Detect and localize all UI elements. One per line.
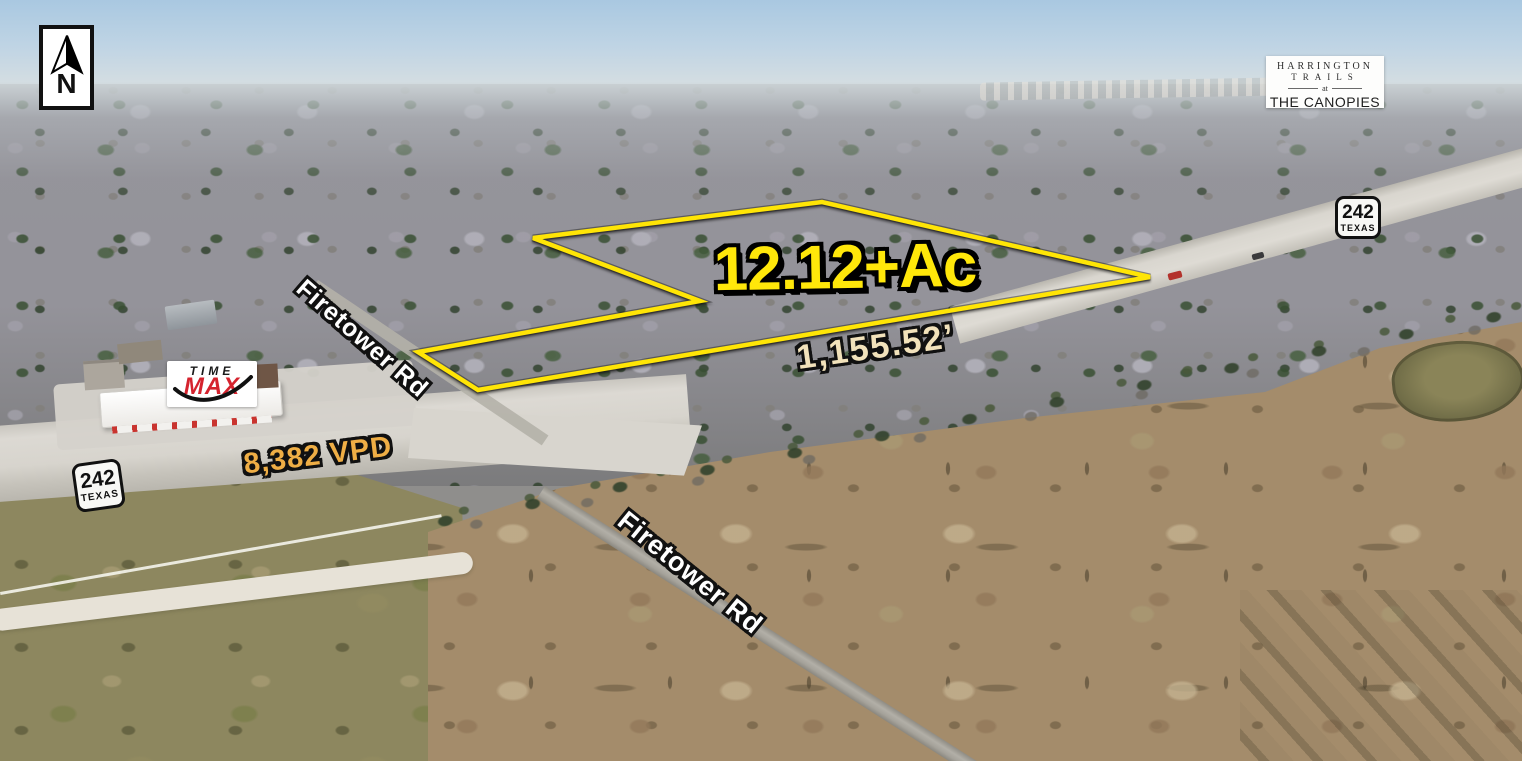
timemax-sign: TIME MAX [167, 361, 257, 407]
acreage-label: 12.12+Ac [713, 235, 977, 302]
developer-logo-connector: at [1322, 85, 1328, 93]
rule-line [1332, 88, 1362, 89]
rule-line [1288, 88, 1318, 89]
developer-logo-line1: HARRINGTON [1269, 61, 1381, 72]
shield-number: 242 [1342, 203, 1374, 222]
shield-state: TEXAS [1340, 224, 1375, 233]
developer-logo-line2: TRAILS [1269, 72, 1381, 83]
developer-logo: HARRINGTON TRAILS at THE CANOPIES [1266, 56, 1384, 108]
developer-logo-line3: THE CANOPIES [1269, 95, 1381, 110]
developer-logo-connector-row: at [1269, 85, 1381, 93]
highway-shield-242-east: 242 TEXAS [1335, 196, 1381, 239]
north-label: N [56, 70, 76, 98]
timemax-swoosh-icon [171, 375, 255, 405]
north-arrow-box: N [39, 25, 94, 110]
aerial-listing-photo: 12.12+Ac 1,155.52’ 8,382 VPD Firetower R… [0, 0, 1522, 761]
highway-shield-242-west: 242 TEXAS [71, 458, 126, 513]
